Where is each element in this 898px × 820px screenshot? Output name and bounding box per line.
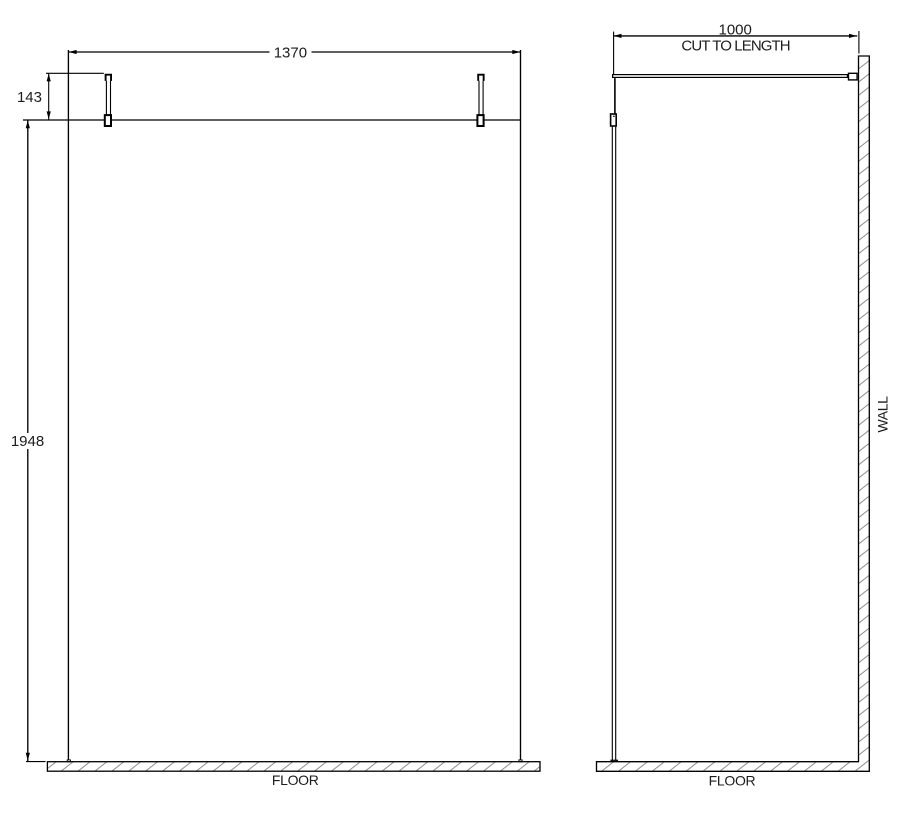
svg-text:1370: 1370 <box>274 45 307 62</box>
svg-text:FLOOR: FLOOR <box>709 773 756 789</box>
svg-text:1000: 1000 <box>719 22 752 39</box>
svg-text:143: 143 <box>17 89 42 106</box>
svg-text:WALL: WALL <box>875 396 891 433</box>
svg-text:CUT TO LENGTH: CUT TO LENGTH <box>681 38 789 55</box>
svg-text:FLOOR: FLOOR <box>272 772 319 788</box>
svg-text:1948: 1948 <box>11 433 44 450</box>
